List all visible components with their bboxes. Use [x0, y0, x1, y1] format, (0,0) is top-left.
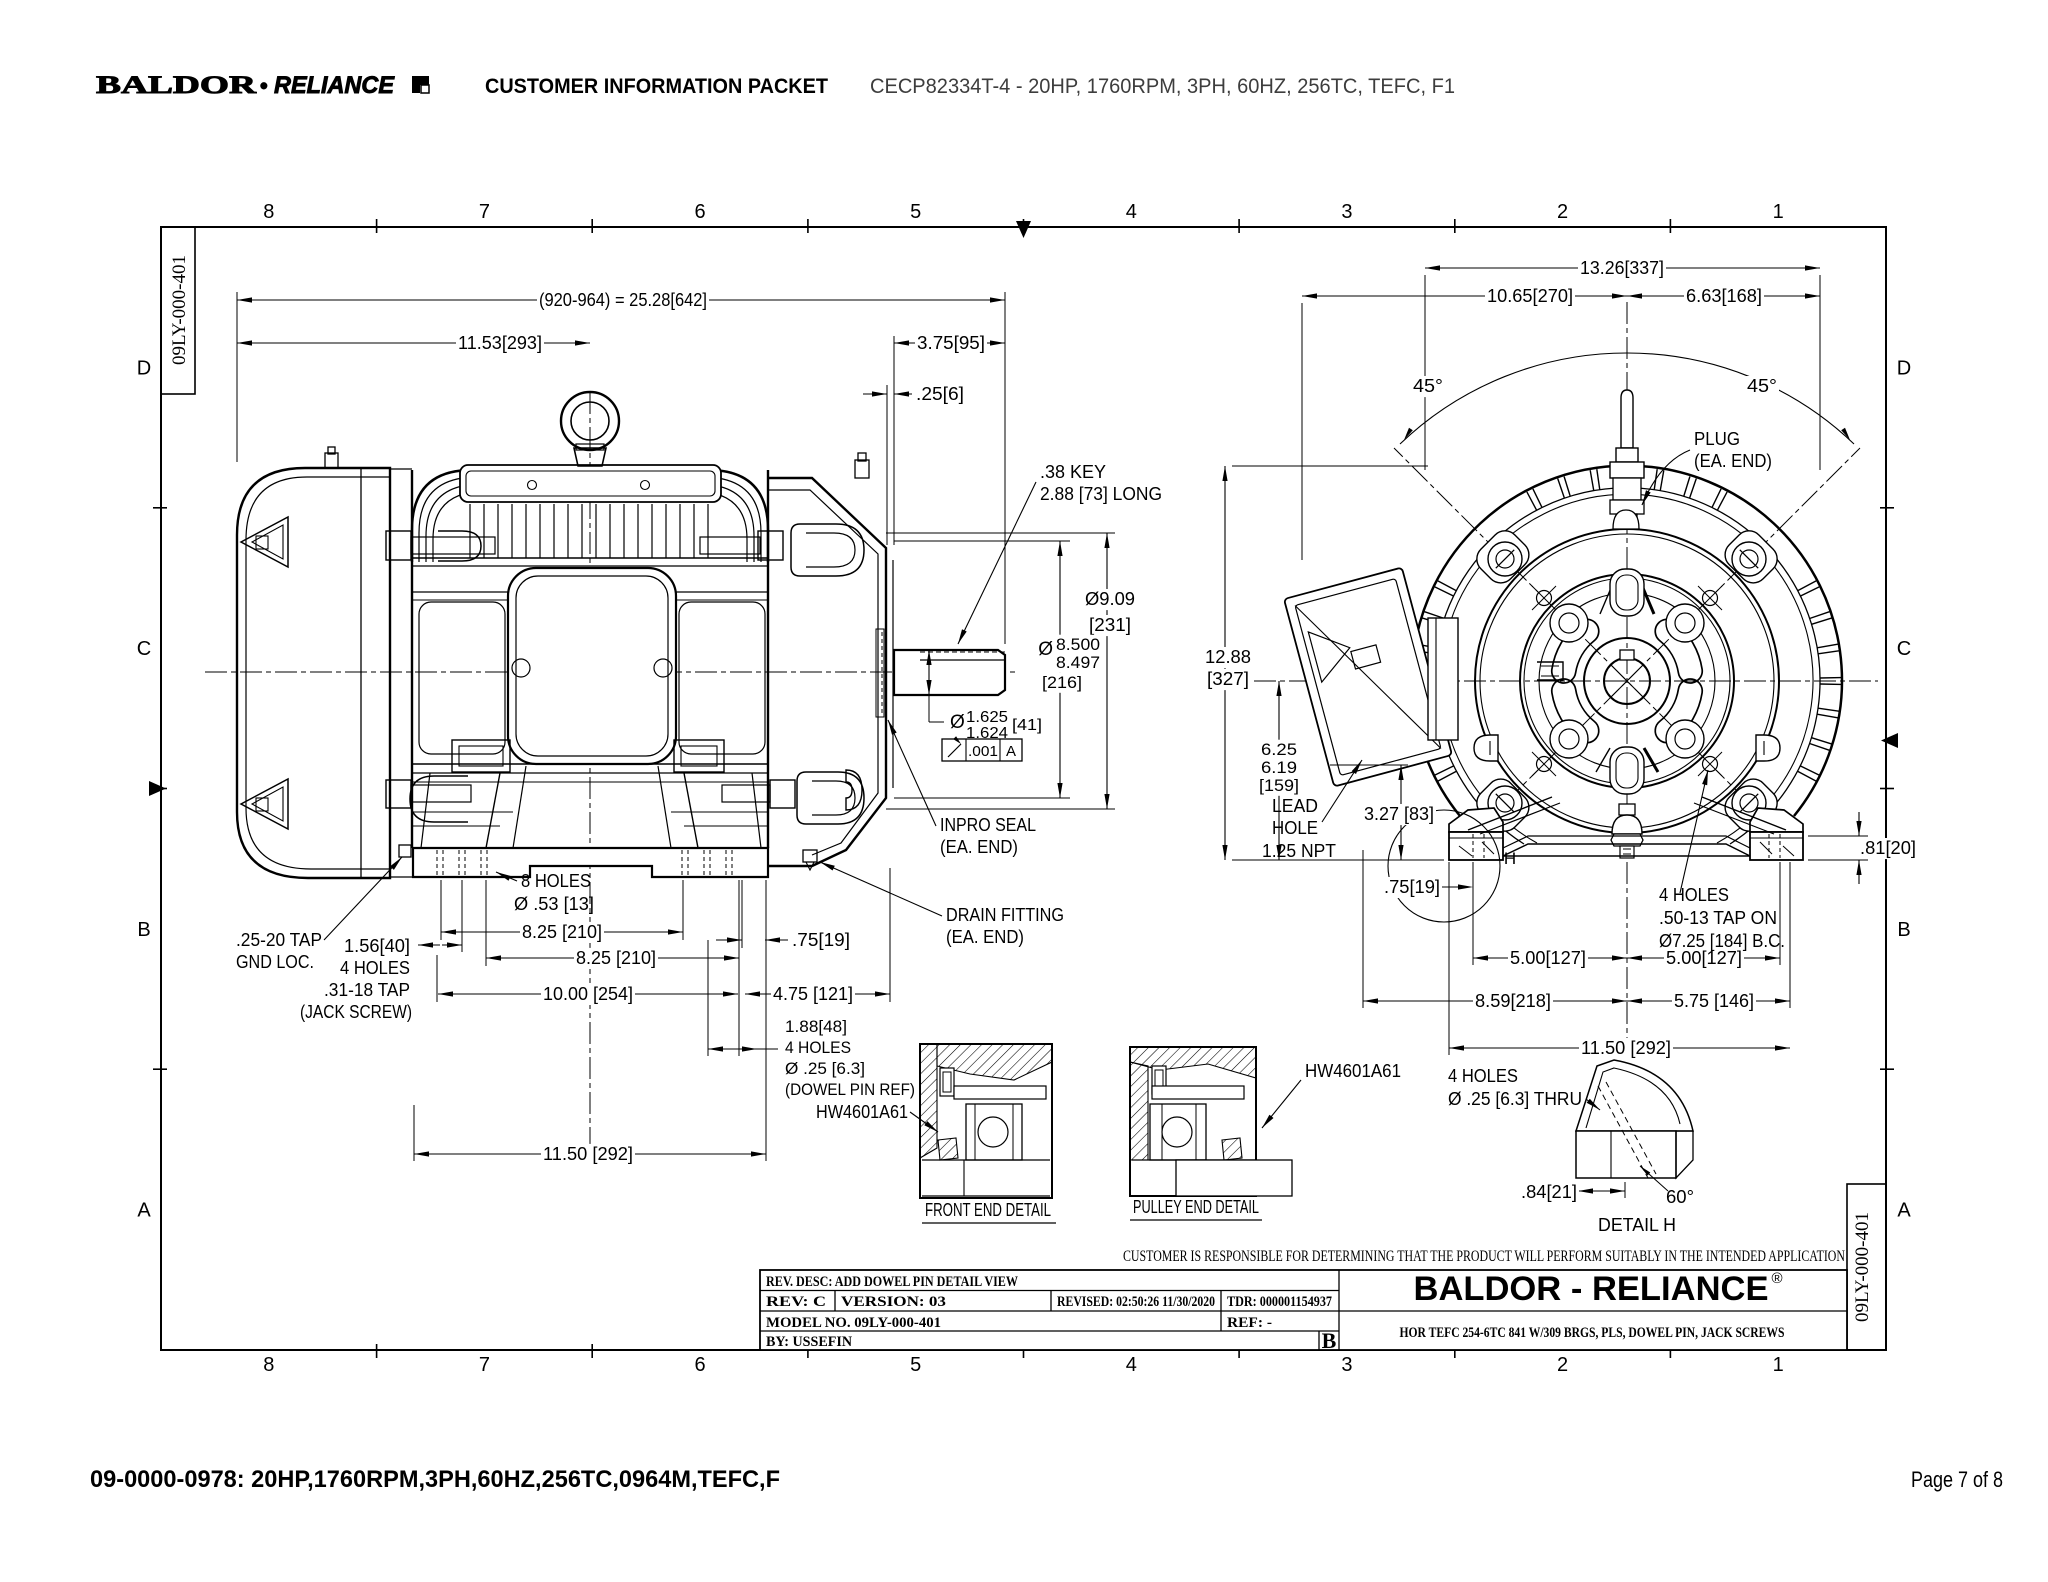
svg-text:.25-20 TAP: .25-20 TAP — [236, 930, 322, 950]
svg-text:HOR TEFC 254-6TC 841 W/309 BRG: HOR TEFC 254-6TC 841 W/309 BRGS, PLS, DO… — [1400, 1325, 1785, 1341]
svg-text:6.19: 6.19 — [1261, 758, 1297, 777]
svg-text:8.497: 8.497 — [1056, 653, 1100, 672]
svg-text:8.500: 8.500 — [1056, 635, 1100, 654]
svg-text:DRAIN FITTING: DRAIN FITTING — [946, 905, 1064, 925]
svg-text:7: 7 — [479, 1354, 490, 1376]
svg-text:5.75 [146]: 5.75 [146] — [1674, 991, 1754, 1011]
svg-text:LEAD: LEAD — [1272, 796, 1318, 816]
svg-text:Page 7 of 8: Page 7 of 8 — [1911, 1467, 2003, 1492]
svg-text:CECP82334T-4 - 20HP, 1760RPM,: CECP82334T-4 - 20HP, 1760RPM, 3PH, 60HZ,… — [870, 75, 1455, 98]
svg-text:4 HOLES: 4 HOLES — [1448, 1066, 1518, 1086]
svg-text:[41]: [41] — [1012, 717, 1042, 734]
svg-text:Ø9.09: Ø9.09 — [1085, 589, 1135, 609]
svg-text:.38 KEY: .38 KEY — [1040, 462, 1106, 482]
svg-text:3: 3 — [1341, 1354, 1352, 1376]
svg-text:D: D — [1897, 357, 1911, 379]
svg-text:4 HOLES: 4 HOLES — [1659, 885, 1729, 905]
svg-text:1.56[40]: 1.56[40] — [344, 936, 410, 956]
svg-text:6: 6 — [695, 201, 706, 223]
svg-text:D: D — [137, 357, 151, 379]
svg-text:Ø: Ø — [950, 712, 965, 733]
svg-text:B: B — [1322, 1328, 1337, 1353]
svg-text:10.65[270]: 10.65[270] — [1487, 286, 1573, 306]
svg-text:10.00 [254]: 10.00 [254] — [543, 984, 633, 1004]
svg-text:8 HOLES: 8 HOLES — [521, 871, 591, 891]
svg-text:3: 3 — [1341, 201, 1352, 223]
svg-text:(EA. END): (EA. END) — [946, 927, 1024, 947]
svg-text:13.26[337]: 13.26[337] — [1580, 258, 1664, 278]
svg-text:.81[20]: .81[20] — [1860, 838, 1916, 858]
svg-text:RELIANCE: RELIANCE — [274, 72, 395, 99]
svg-text:[216]: [216] — [1042, 673, 1082, 692]
svg-text:BALDOR: BALDOR — [96, 72, 257, 99]
svg-text:REVISED: 02:50:26 11/30/2020: REVISED: 02:50:26 11/30/2020 — [1057, 1294, 1215, 1310]
svg-text:®: ® — [1771, 1270, 1782, 1287]
svg-text:INPRO SEAL: INPRO SEAL — [940, 815, 1036, 835]
svg-text:C: C — [1897, 638, 1911, 660]
svg-text:HW4601A61: HW4601A61 — [816, 1102, 908, 1122]
svg-text:(JACK SCREW): (JACK SCREW) — [300, 1002, 412, 1022]
svg-text:11.53[293]: 11.53[293] — [458, 333, 542, 353]
svg-text:Ø7.25 [184] B.C.: Ø7.25 [184] B.C. — [1659, 931, 1785, 951]
svg-text:8: 8 — [263, 201, 274, 223]
svg-text:DETAIL H: DETAIL H — [1598, 1215, 1676, 1235]
svg-text:(EA. END): (EA. END) — [940, 837, 1018, 857]
svg-text:H: H — [1504, 849, 1516, 868]
svg-text:.50-13 TAP ON: .50-13 TAP ON — [1659, 908, 1777, 928]
svg-text:PULLEY END DETAIL: PULLEY END DETAIL — [1133, 1197, 1259, 1217]
svg-text:6: 6 — [695, 1354, 706, 1376]
svg-text:1.88[48]: 1.88[48] — [785, 1017, 847, 1036]
svg-text:HOLE: HOLE — [1272, 818, 1318, 838]
svg-text:CUSTOMER INFORMATION PACKET: CUSTOMER INFORMATION PACKET — [485, 75, 828, 98]
svg-text:B: B — [137, 919, 150, 941]
svg-text:45°: 45° — [1413, 376, 1443, 396]
svg-text:FRONT END DETAIL: FRONT END DETAIL — [925, 1200, 1051, 1220]
svg-text:8.25 [210]: 8.25 [210] — [522, 922, 602, 942]
svg-text:HW4601A61: HW4601A61 — [1305, 1061, 1401, 1081]
svg-text:45°: 45° — [1747, 376, 1777, 396]
svg-text:.84[21]: .84[21] — [1521, 1182, 1577, 1202]
svg-text:4: 4 — [1126, 1354, 1137, 1376]
svg-text:5: 5 — [910, 201, 921, 223]
svg-text:8.25 [210]: 8.25 [210] — [576, 948, 656, 968]
svg-text:Ø .53 [13]: Ø .53 [13] — [514, 894, 594, 914]
svg-text:(920-964) = 25.28[642]: (920-964) = 25.28[642] — [539, 290, 707, 310]
svg-text:REV: C: REV: C — [766, 1294, 826, 1310]
svg-text:Ø .25 [6.3] THRU: Ø .25 [6.3] THRU — [1448, 1089, 1582, 1109]
svg-text:A: A — [1006, 743, 1016, 760]
svg-text:2.88 [73] LONG: 2.88 [73] LONG — [1040, 484, 1162, 504]
svg-text:VERSION: 03: VERSION: 03 — [841, 1294, 946, 1310]
svg-text:11.50 [292]: 11.50 [292] — [1581, 1038, 1671, 1058]
svg-text:09LY-000-401: 09LY-000-401 — [1852, 1212, 1873, 1322]
svg-text:3.75[95]: 3.75[95] — [917, 333, 985, 353]
svg-text:C: C — [137, 638, 151, 660]
svg-text:Ø .25 [6.3]: Ø .25 [6.3] — [785, 1059, 865, 1078]
svg-text:B: B — [1897, 919, 1910, 941]
svg-text:11.50 [292]: 11.50 [292] — [543, 1144, 633, 1164]
svg-text:.31-18 TAP: .31-18 TAP — [324, 980, 410, 1000]
svg-text:TDR: 000001154937: TDR: 000001154937 — [1227, 1294, 1332, 1310]
svg-text:09LY-000-401: 09LY-000-401 — [169, 255, 190, 365]
svg-text:12.88: 12.88 — [1205, 647, 1251, 667]
svg-text:60°: 60° — [1666, 1187, 1694, 1207]
svg-text:MODEL NO. 09LY-000-401: MODEL NO. 09LY-000-401 — [766, 1315, 941, 1331]
svg-text:•: • — [260, 73, 268, 98]
svg-text:4.75 [121]: 4.75 [121] — [773, 984, 853, 1004]
svg-text:8.59[218]: 8.59[218] — [1475, 991, 1551, 1011]
svg-text:4 HOLES: 4 HOLES — [340, 958, 410, 978]
svg-text:CUSTOMER IS RESPONSIBLE FOR DE: CUSTOMER IS RESPONSIBLE FOR DETERMINING … — [1123, 1248, 1845, 1265]
svg-text:7: 7 — [479, 201, 490, 223]
svg-text:A: A — [137, 1200, 151, 1222]
svg-text:1: 1 — [1773, 201, 1784, 223]
svg-text:(EA. END): (EA. END) — [1694, 451, 1772, 471]
svg-text:5: 5 — [910, 1354, 921, 1376]
svg-text:09-0000-0978: 20HP,1760RPM,3PH: 09-0000-0978: 20HP,1760RPM,3PH,60HZ,256T… — [90, 1466, 780, 1493]
svg-text:PLUG: PLUG — [1694, 429, 1740, 449]
svg-text:BALDOR - RELIANCE: BALDOR - RELIANCE — [1414, 1270, 1769, 1308]
svg-text:.75[19]: .75[19] — [792, 930, 850, 950]
svg-text:6.63[168]: 6.63[168] — [1686, 286, 1762, 306]
svg-text:.25[6]: .25[6] — [916, 384, 964, 404]
svg-text:REV. DESC: ADD DOWEL PIN DETAI: REV. DESC: ADD DOWEL PIN DETAIL VIEW — [766, 1274, 1018, 1290]
svg-text:6.25: 6.25 — [1261, 740, 1297, 759]
svg-text:1.625: 1.625 — [966, 709, 1008, 726]
svg-text:1: 1 — [1773, 1354, 1784, 1376]
svg-text:BY: USSEFIN: BY: USSEFIN — [766, 1334, 852, 1350]
svg-text:2: 2 — [1557, 1354, 1568, 1376]
svg-text:8: 8 — [263, 1354, 274, 1376]
svg-text:1.25 NPT: 1.25 NPT — [1262, 841, 1336, 861]
svg-text:A: A — [1897, 1200, 1911, 1222]
svg-text:[159]: [159] — [1259, 776, 1299, 795]
svg-text:Ø: Ø — [1038, 639, 1053, 660]
svg-text:.001: .001 — [968, 743, 998, 760]
svg-text:3.27 [83]: 3.27 [83] — [1364, 804, 1434, 824]
svg-text:[327]: [327] — [1207, 669, 1249, 689]
svg-text:4 HOLES: 4 HOLES — [785, 1038, 851, 1057]
svg-text:(DOWEL PIN REF): (DOWEL PIN REF) — [785, 1080, 915, 1099]
svg-text:2: 2 — [1557, 201, 1568, 223]
svg-text:.75[19]: .75[19] — [1384, 877, 1440, 897]
svg-text:5.00[127]: 5.00[127] — [1510, 948, 1586, 968]
svg-text:[231]: [231] — [1089, 615, 1131, 635]
svg-text:REF: -: REF: - — [1227, 1315, 1272, 1331]
svg-text:4: 4 — [1126, 201, 1137, 223]
svg-text:GND LOC.: GND LOC. — [236, 952, 314, 972]
